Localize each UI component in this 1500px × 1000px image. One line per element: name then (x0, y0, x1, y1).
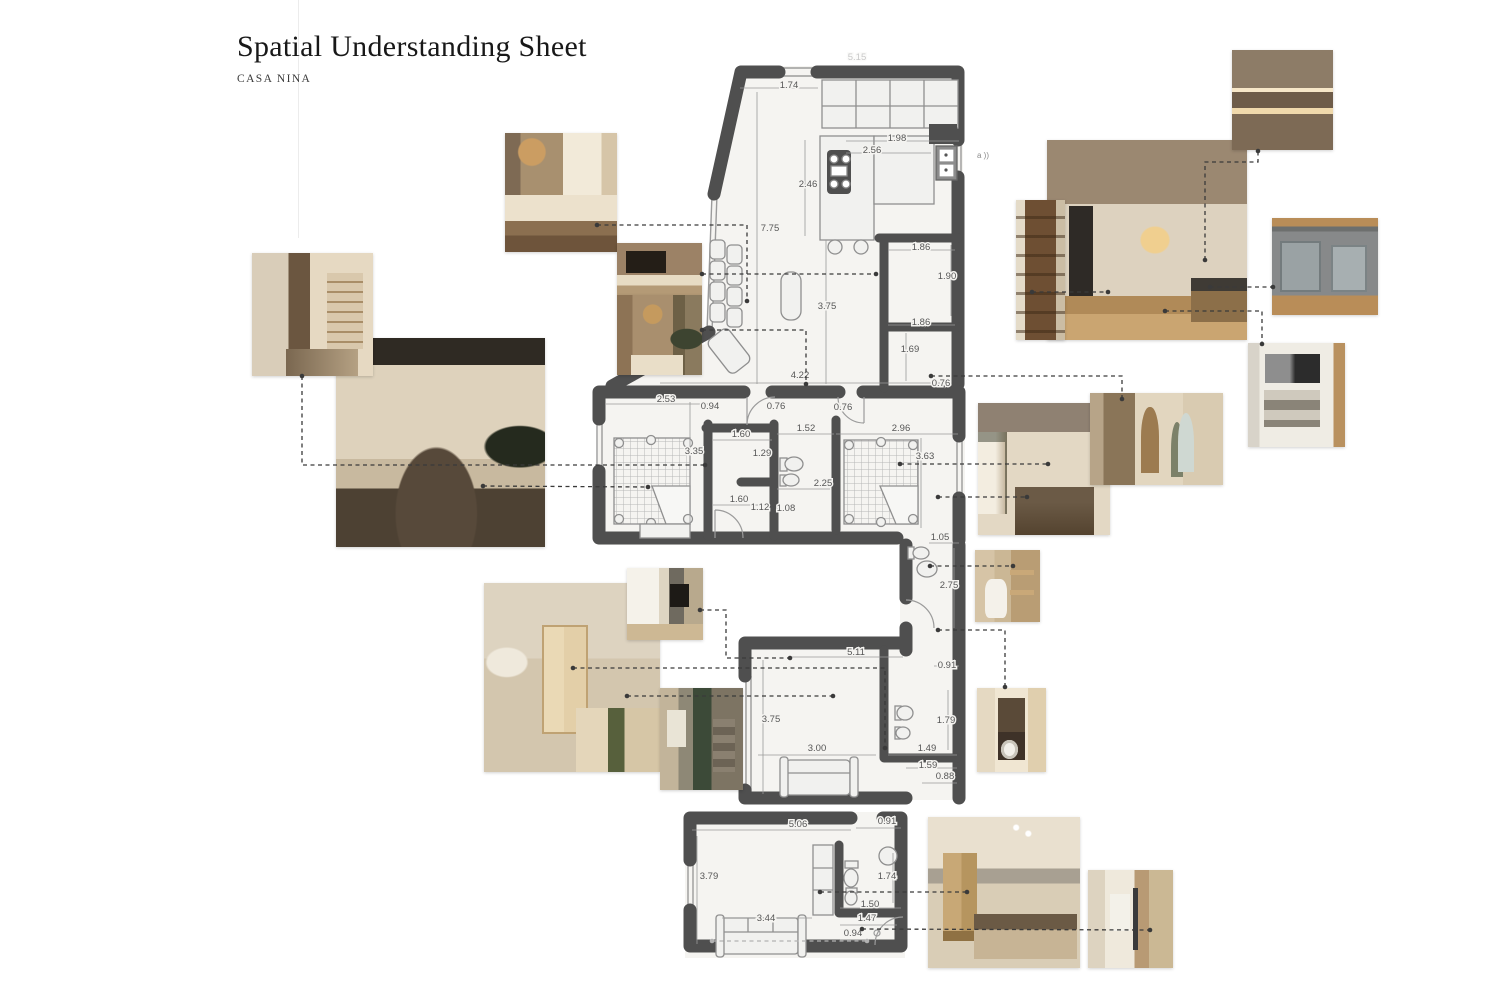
dimension-label: 2.25 (814, 478, 833, 489)
dimension-label: 1.59 (919, 760, 938, 771)
title-block: Spatial Understanding Sheet CASA NINA (237, 30, 587, 85)
dimension-label: 3.35 (685, 446, 704, 457)
floor-plan: 5.151.741.982.562.467.751.861.903.751.86… (0, 0, 1500, 1000)
shower-room-render (1088, 870, 1173, 968)
dimension-label: 1.86 (912, 317, 931, 328)
tv-wall-render (617, 243, 702, 295)
dimension-label: 2.46 (799, 179, 818, 190)
dimension-label: 2.75 (940, 580, 959, 591)
dimension-label: 1.49 (918, 743, 937, 754)
dimension-label: 5.06 (789, 819, 808, 830)
dimension-label: 1.69 (901, 344, 920, 355)
dimension-label: 1.74 (780, 80, 799, 91)
dimension-label: 3.44 (757, 913, 776, 924)
dimension-label: 1.98 (888, 133, 907, 144)
dimension-label: 3.75 (818, 301, 837, 312)
dimension-label: 0.76 (932, 378, 951, 389)
plan-annotation: a )) (977, 151, 989, 160)
dimension-label: 1.60 (730, 494, 749, 505)
under-sink-bins-render (1272, 218, 1378, 315)
dimension-label: 4.22 (791, 370, 810, 381)
dimension-label: 1.50 (861, 899, 880, 910)
dimension-label: 0.94 (844, 928, 863, 939)
dimension-label: 0.94 (701, 401, 720, 412)
dimension-label: 0.76 (834, 402, 853, 413)
wc-toilet-render (975, 550, 1040, 622)
living-pendant-render (617, 295, 702, 375)
dimension-label: 0.91 (938, 660, 957, 671)
dimension-label: 0.76 (767, 401, 786, 412)
dimension-label: 1.52 (797, 423, 816, 434)
guest-room-render (928, 817, 1080, 968)
dimension-label: 2.56 (863, 145, 882, 156)
dimension-label: 2.53 (657, 394, 676, 405)
dimension-label: 3.63 (916, 451, 935, 462)
dimension-label: 1.74 (878, 871, 897, 882)
dimension-label: 3.00 (808, 743, 827, 754)
dimension-label: 1.79 (937, 715, 956, 726)
page-subtitle: CASA NINA (237, 73, 587, 85)
dimension-label: 0.91 (878, 816, 897, 827)
dimension-label: 1.47 (858, 913, 877, 924)
laundry-niche-render (977, 688, 1046, 772)
living-room-render (505, 133, 617, 252)
shelf-niche-render (1232, 50, 1333, 150)
dimension-label: 1.08 (777, 503, 796, 514)
appliance-cabinet-render (1248, 343, 1345, 447)
dimension-label: 3.79 (700, 871, 719, 882)
dimension-label: 1.60 (732, 429, 751, 440)
dimension-label: 3.75 (762, 714, 781, 725)
page-title: Spatial Understanding Sheet (237, 30, 587, 64)
kitchen-render (1047, 140, 1247, 340)
tv-curtain-render (627, 568, 703, 640)
dimension-label: 7.75 (761, 223, 780, 234)
hallway-arch-render (1090, 393, 1223, 485)
spatial-understanding-sheet: Spatial Understanding Sheet CASA NINA (0, 0, 1500, 1000)
hall-wardrobe-render (252, 253, 373, 376)
dimension-label: 5.15 (848, 52, 867, 63)
dimension-label: 1.05 (931, 532, 950, 543)
plan-annotations: a )) (977, 151, 989, 160)
dimension-label: 1.29 (753, 448, 772, 459)
dimension-label: 5.11 (847, 647, 865, 658)
dimension-label: 2.96 (892, 423, 911, 434)
dimension-label: 0.88 (936, 771, 955, 782)
green-shower-render (660, 688, 743, 790)
pantry-render (1016, 200, 1065, 340)
dimension-label: 1.90 (938, 271, 957, 282)
dimension-label: 1.12 (751, 502, 770, 513)
dimension-label: 1.86 (912, 242, 931, 253)
